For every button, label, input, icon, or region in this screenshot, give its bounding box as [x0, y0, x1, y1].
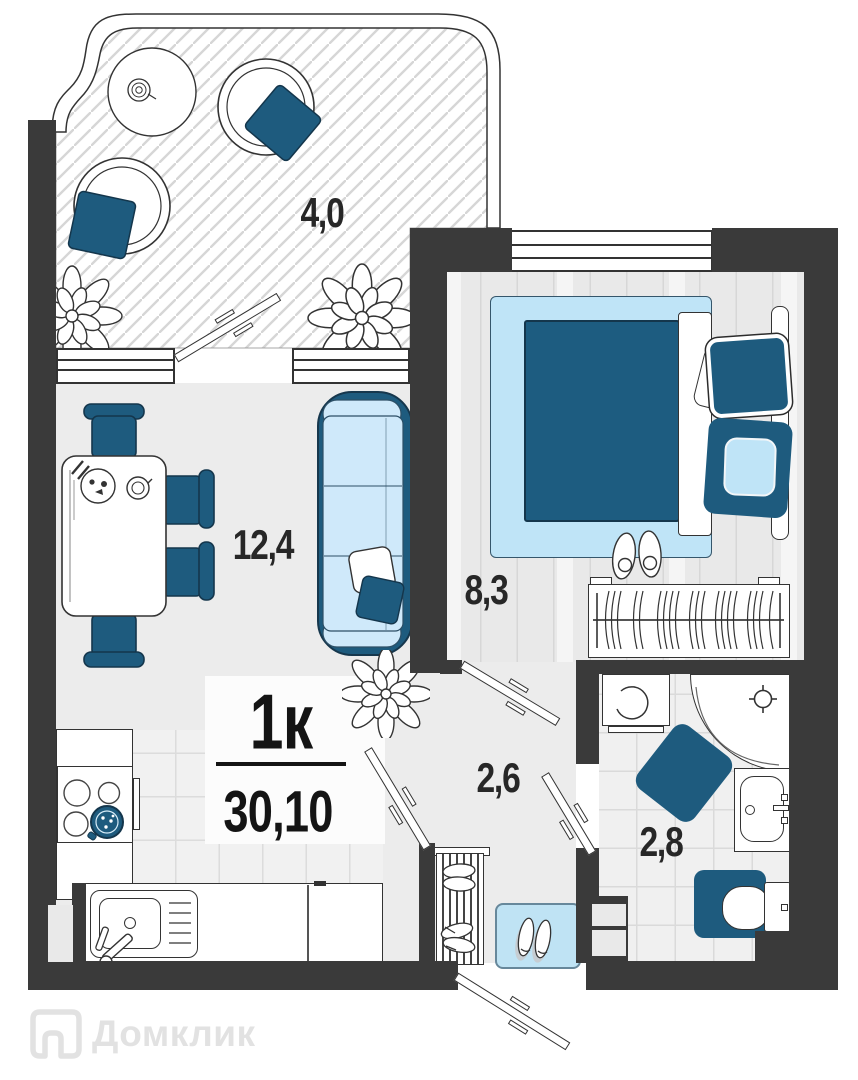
toilet-button: [781, 904, 788, 911]
duct-block: [586, 896, 628, 962]
toilet-tank: [764, 882, 791, 932]
pan-icon: [87, 806, 123, 841]
wardrobe: [588, 584, 790, 658]
wall-top-left-of-window: [410, 228, 512, 272]
chair-bottom-seat: [92, 614, 136, 656]
wall-bath-right: [789, 660, 805, 990]
watermark: Домклик: [30, 1008, 256, 1060]
wall-kitchen-hall-stub: [419, 843, 435, 963]
bath-tap-left: [781, 794, 788, 801]
bedroom-area-label: 8,3: [464, 566, 507, 614]
dining-group: [52, 400, 222, 680]
chair-right1-backrest: [199, 470, 214, 528]
sofa-pillow-dark: [355, 575, 405, 625]
wall-vent-notch: [48, 905, 73, 962]
wall-bedroom-bath: [576, 660, 791, 674]
ratio-divider: [216, 762, 346, 766]
balcony-window-right: [292, 348, 410, 384]
drainboard-lines: [169, 903, 191, 943]
living-area-label: 12,4: [233, 521, 294, 569]
toilet-bowl: [722, 886, 770, 930]
balcony-area-label: 4,0: [300, 189, 343, 237]
chair-top-seat: [92, 416, 136, 458]
cabinet-handle: [314, 881, 326, 886]
total-area-label: 30,10: [223, 779, 332, 846]
shoe-rack: [436, 853, 484, 965]
chair-right2-seat: [162, 548, 202, 596]
wall-left: [28, 120, 56, 990]
shoes-on-rack: [440, 863, 476, 955]
bath-sink-drain: [745, 805, 755, 815]
watermark-text: Домклик: [92, 1013, 256, 1055]
wall-chunk-sink-left: [72, 883, 86, 963]
bed-pillow-top: [705, 333, 792, 419]
wardrobe-hangers: [589, 585, 788, 656]
chair-right2-backrest: [199, 542, 214, 600]
hallway-area-label: 2,6: [476, 754, 519, 802]
domclick-logo-icon: [30, 1008, 82, 1060]
bed-small-pillow: [725, 439, 775, 495]
stove: [57, 766, 133, 843]
wall-living-bedroom: [410, 270, 447, 673]
burner: [64, 780, 90, 806]
sofa: [316, 390, 416, 658]
slippers-icon: [606, 526, 670, 588]
floor-plan: 4,0 12,4 8,3 2,6 2,8 1к 30,10 Домклик: [0, 0, 858, 1080]
bed-duvet: [524, 320, 680, 522]
bathroom-area-label: 2,8: [639, 818, 682, 866]
counter-divider: [307, 885, 309, 961]
wall-hall-stub: [440, 660, 462, 674]
wall-bath-bottom-step: [755, 931, 791, 963]
apartment-type-label: 1к: [250, 677, 313, 768]
plate-icon: [81, 469, 115, 503]
burner: [64, 812, 88, 836]
shower-head-icon: [749, 685, 777, 713]
shoes-on-mat: [497, 905, 579, 967]
chair-right1-seat: [162, 476, 202, 524]
entrance-door: [454, 973, 571, 1051]
washing-machine-base: [608, 726, 664, 733]
wall-top-right-of-window: [712, 228, 806, 272]
bath-faucet: [773, 805, 789, 811]
wall-right: [804, 228, 838, 990]
oven-handle: [133, 778, 140, 830]
washer-drum: [617, 687, 648, 719]
burner: [99, 783, 120, 804]
wall-hall-bath-upper: [576, 674, 599, 764]
wall-bottom-left: [28, 961, 458, 990]
washing-machine: [602, 674, 670, 726]
bath-sink: [734, 768, 791, 852]
balcony-table: [108, 48, 196, 136]
bedroom-window: [510, 230, 713, 272]
balcony-window-left: [56, 348, 175, 384]
chair-bottom-backrest: [84, 652, 144, 667]
bath-tap-right: [781, 817, 788, 824]
door-mat: [495, 903, 581, 969]
